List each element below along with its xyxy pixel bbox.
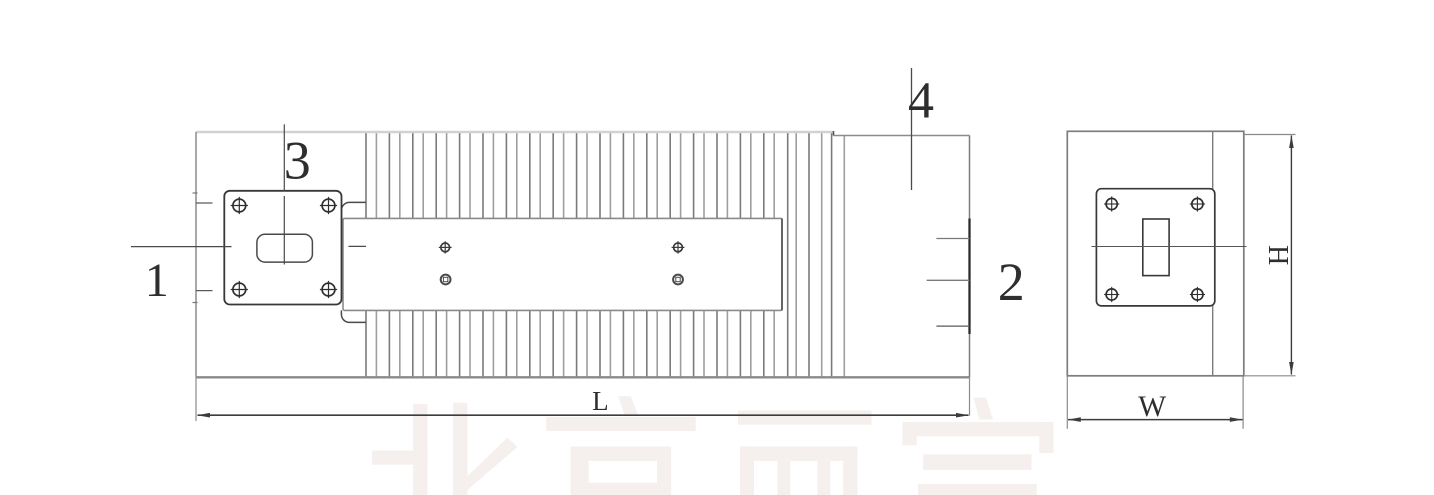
svg-text:3: 3 xyxy=(284,131,311,191)
svg-text:1: 1 xyxy=(145,254,169,307)
svg-text:W: W xyxy=(1138,391,1166,423)
svg-text:4: 4 xyxy=(908,73,934,130)
svg-text:H: H xyxy=(1262,245,1293,265)
svg-text:L: L xyxy=(592,386,609,416)
svg-text:2: 2 xyxy=(998,252,1025,312)
